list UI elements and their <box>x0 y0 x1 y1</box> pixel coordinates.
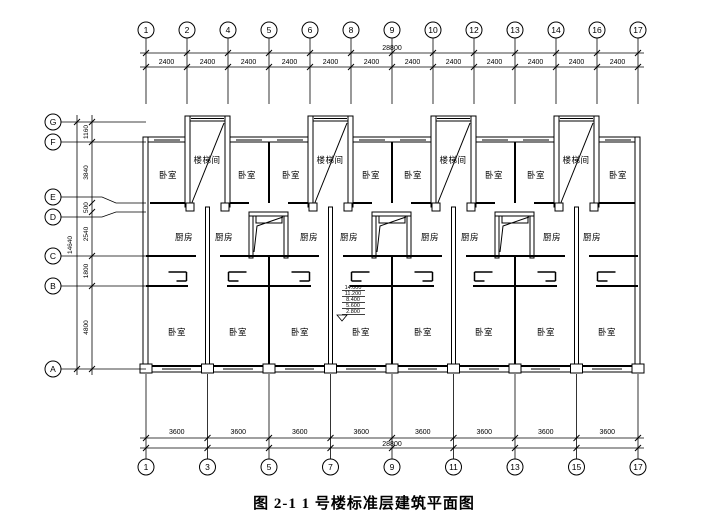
dim-bottom-total: 28800 <box>382 441 402 448</box>
svg-text:8: 8 <box>349 25 354 35</box>
svg-text:E: E <box>50 192 56 202</box>
svg-text:3600: 3600 <box>415 429 431 436</box>
elevation-value: 2.800 <box>346 309 360 315</box>
svg-text:F: F <box>50 137 55 147</box>
svg-text:2400: 2400 <box>528 59 544 66</box>
elevation-marks: 14.00011.2008.4005.6002.800 <box>337 285 365 321</box>
room-label: 厨房 <box>421 232 439 242</box>
svg-text:4800: 4800 <box>83 320 90 335</box>
svg-text:3840: 3840 <box>83 165 90 180</box>
svg-text:3600: 3600 <box>169 429 185 436</box>
svg-text:2400: 2400 <box>487 59 503 66</box>
svg-text:2400: 2400 <box>405 59 421 66</box>
room-label: 卧室 <box>229 327 247 337</box>
svg-text:12: 12 <box>469 25 479 35</box>
room-label: 楼梯间 <box>439 155 466 165</box>
room-label: 卧室 <box>485 170 503 180</box>
svg-text:2540: 2540 <box>83 226 90 241</box>
svg-text:B: B <box>50 281 56 291</box>
svg-text:2400: 2400 <box>323 59 339 66</box>
left-axis: GFEDCBA1160384050025401800480014640 <box>45 114 146 377</box>
elevation-triangle-icon <box>337 315 347 321</box>
room-label: 楼梯间 <box>562 155 589 165</box>
room-label: 卧室 <box>598 327 616 337</box>
dim-top-total: 28800 <box>382 45 402 52</box>
svg-text:9: 9 <box>390 462 395 472</box>
svg-text:14: 14 <box>551 25 561 35</box>
room-label: 卧室 <box>537 327 555 337</box>
svg-text:2400: 2400 <box>159 59 175 66</box>
room-label: 卧室 <box>159 170 177 180</box>
svg-text:15: 15 <box>572 462 582 472</box>
room-label: 卧室 <box>352 327 370 337</box>
svg-text:C: C <box>50 251 56 261</box>
svg-text:2400: 2400 <box>446 59 462 66</box>
svg-text:13: 13 <box>510 25 520 35</box>
svg-text:3600: 3600 <box>599 429 615 436</box>
room-label: 厨房 <box>175 232 193 242</box>
svg-text:A: A <box>50 364 56 374</box>
svg-text:2400: 2400 <box>200 59 216 66</box>
room-label: 楼梯间 <box>316 155 343 165</box>
svg-text:10: 10 <box>428 25 438 35</box>
floor-plan-drawing: 1245689101213141617288002400240024002400… <box>0 0 728 518</box>
svg-text:2400: 2400 <box>610 59 626 66</box>
room-label: 卧室 <box>609 170 627 180</box>
room-label: 卧室 <box>527 170 545 180</box>
svg-text:17: 17 <box>633 462 643 472</box>
room-label: 厨房 <box>300 232 318 242</box>
svg-text:4: 4 <box>226 25 231 35</box>
svg-text:2400: 2400 <box>569 59 585 66</box>
room-label: 卧室 <box>291 327 309 337</box>
room-label: 厨房 <box>461 232 479 242</box>
room-label: 厨房 <box>340 232 358 242</box>
svg-text:1160: 1160 <box>83 125 90 139</box>
room-label: 卧室 <box>404 170 422 180</box>
svg-text:2400: 2400 <box>241 59 257 66</box>
svg-text:5: 5 <box>267 462 272 472</box>
room-label: 厨房 <box>215 232 233 242</box>
svg-text:G: G <box>50 117 57 127</box>
svg-text:9: 9 <box>390 25 395 35</box>
svg-text:3600: 3600 <box>230 429 246 436</box>
svg-text:11: 11 <box>449 462 458 472</box>
room-label: 卧室 <box>414 327 432 337</box>
room-label: 卧室 <box>282 170 300 180</box>
svg-text:1: 1 <box>144 25 149 35</box>
svg-text:3: 3 <box>205 462 210 472</box>
room-label: 卧室 <box>475 327 493 337</box>
room-label: 卧室 <box>238 170 256 180</box>
svg-text:7: 7 <box>328 462 333 472</box>
bottom-axis: 1357911131517360036003600360036003600360… <box>138 374 646 475</box>
dim-left-total: 14640 <box>67 236 74 254</box>
floor-plan-page: 1245689101213141617288002400240024002400… <box>0 0 728 518</box>
svg-text:6: 6 <box>308 25 313 35</box>
room-label: 厨房 <box>583 232 601 242</box>
svg-text:2400: 2400 <box>282 59 298 66</box>
svg-text:2400: 2400 <box>364 59 380 66</box>
svg-text:1800: 1800 <box>83 263 90 278</box>
svg-text:13: 13 <box>510 462 520 472</box>
svg-text:16: 16 <box>592 25 602 35</box>
svg-text:17: 17 <box>633 25 643 35</box>
svg-text:1: 1 <box>144 462 149 472</box>
svg-text:500: 500 <box>83 202 90 213</box>
svg-text:5: 5 <box>267 25 272 35</box>
room-label: 楼梯间 <box>193 155 220 165</box>
svg-text:D: D <box>50 212 56 222</box>
room-label: 卧室 <box>168 327 186 337</box>
svg-text:3600: 3600 <box>353 429 369 436</box>
top-axis: 1245689101213141617288002400240024002400… <box>138 22 646 104</box>
svg-text:3600: 3600 <box>292 429 308 436</box>
figure-caption: 图 2-1 1 号楼标准层建筑平面图 <box>0 492 728 513</box>
room-label: 厨房 <box>543 232 561 242</box>
svg-text:3600: 3600 <box>476 429 492 436</box>
svg-text:3600: 3600 <box>538 429 554 436</box>
room-label: 卧室 <box>362 170 380 180</box>
svg-text:2: 2 <box>185 25 190 35</box>
